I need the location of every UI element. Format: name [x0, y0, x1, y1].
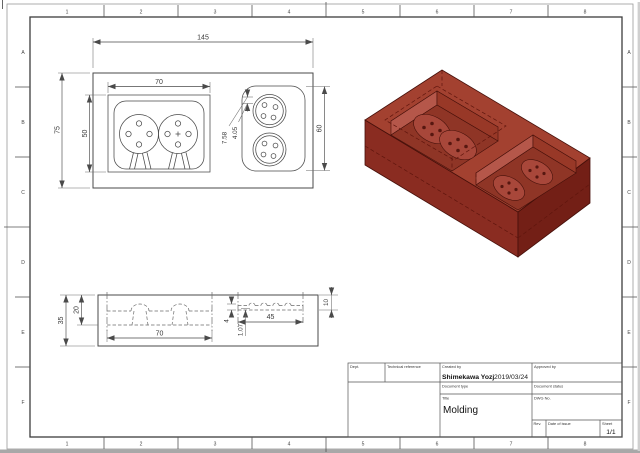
dim-text-145: 145	[197, 35, 209, 42]
zone-row: A	[21, 50, 25, 56]
dim-text-7.58: 7.58	[222, 131, 229, 144]
dept-label: Dept.	[350, 364, 359, 369]
zone-col: 4	[288, 442, 291, 448]
dim-text-10: 10	[323, 299, 330, 307]
cad-drawing-canvas: 1 2 3 4 5 6 7 8 1 2 3 4 5 6 7 8 A B C D …	[0, 0, 640, 453]
dim-text-50: 50	[82, 130, 89, 138]
drawing-title: Molding	[443, 405, 478, 416]
iso-view	[365, 70, 590, 257]
zone-row: C	[21, 190, 25, 196]
dim-boss-width: 70	[108, 79, 210, 93]
dim-cavity-width: 70	[107, 330, 212, 342]
top-view: 145 75 70 50 60	[55, 35, 331, 189]
title-label: Title	[442, 396, 449, 401]
zone-row: B	[21, 120, 25, 126]
zone-row: E	[627, 330, 631, 336]
zone-col: 7	[510, 442, 513, 448]
document-type-label: Document type	[442, 384, 468, 389]
boss-legs	[130, 153, 191, 170]
dwg-no-label: DWG No.	[534, 396, 551, 401]
dim-text-70: 70	[155, 79, 163, 86]
dim-text-20: 20	[74, 306, 81, 314]
left-cavity	[114, 101, 204, 169]
zone-col: 3	[214, 10, 217, 16]
technical-reference-label: Technical reference	[387, 364, 421, 369]
dim-text-4: 4	[224, 319, 231, 323]
zone-col: 2	[140, 442, 143, 448]
title-block: Dept. Technical reference Created by Shi…	[348, 363, 622, 437]
dim-text-35: 35	[58, 317, 65, 325]
dim-text-1.07: 1.07	[238, 323, 245, 336]
dim-text-4.05: 4.05	[232, 126, 239, 139]
dim-text-60: 60	[317, 125, 324, 133]
approved-by-label: Approved by	[534, 364, 556, 369]
center-mark-icon	[176, 132, 181, 137]
dim-right-cavity-height: 60	[306, 87, 330, 171]
created-date-value: 2019/03/24	[494, 374, 528, 381]
zone-col: 2	[140, 10, 143, 16]
dim-side-height: 35	[58, 295, 95, 346]
left-boss-rect	[108, 95, 210, 172]
zone-row: C	[627, 190, 631, 196]
dim-step: 4	[224, 297, 237, 323]
zone-row: F	[21, 400, 24, 406]
drawing-sheet: 1 2 3 4 5 6 7 8 1 2 3 4 5 6 7 8 A B C D …	[0, 0, 640, 453]
rev-label: Rev.	[534, 421, 542, 426]
zone-col: 1	[66, 10, 69, 16]
part-outline-side	[98, 295, 318, 346]
zone-row: D	[21, 260, 25, 266]
zone-row: A	[627, 50, 631, 56]
hidden-legs	[132, 311, 188, 325]
boss-bump	[171, 304, 189, 311]
zone-col: 5	[362, 10, 365, 16]
zone-col: 6	[436, 442, 439, 448]
socket-holes	[261, 103, 278, 159]
created-by-value: Shimekawa Yozj	[442, 374, 494, 381]
profile-bumps	[238, 303, 303, 306]
zone-row: D	[627, 260, 631, 266]
zone-row: F	[627, 400, 630, 406]
dim-socket-gaps: 7.58 4.05	[222, 89, 254, 144]
boss-circle	[120, 115, 159, 154]
date-of-issue-label: Date of issue	[548, 421, 571, 426]
zone-col: 3	[214, 442, 217, 448]
sheet-value: 1/1	[606, 429, 616, 436]
zone-col: 7	[510, 10, 513, 16]
created-by-label: Created by	[442, 364, 461, 369]
zone-col: 4	[288, 10, 291, 16]
sheet-label: Sheet	[602, 421, 613, 426]
dim-text-45: 45	[267, 314, 275, 321]
dim-overall-width: 145	[93, 35, 313, 69]
zone-col: 6	[436, 10, 439, 16]
zone-col: 8	[584, 10, 587, 16]
dim-boss-height: 50	[82, 95, 106, 172]
socket-circle	[253, 95, 286, 128]
zone-col: 1	[66, 442, 69, 448]
zone-row: E	[21, 330, 25, 336]
dim-text-70b: 70	[156, 331, 164, 338]
socket-circle	[253, 133, 286, 166]
page-bottom-shadow	[0, 450, 640, 453]
dim-right-cavity-depth: 10	[319, 287, 338, 318]
zone-col: 5	[362, 442, 365, 448]
socket-circle-inner	[256, 136, 284, 164]
boss-bump	[131, 304, 149, 311]
dim-right-cavity-width: 45	[238, 314, 303, 322]
zone-col: 8	[584, 442, 587, 448]
dim-text-75: 75	[55, 126, 62, 134]
zone-row: B	[627, 120, 631, 126]
side-view: 35 20 70 45 4 1.07	[58, 287, 338, 346]
dim-cavity-depth: 20	[74, 295, 99, 325]
socket-circle-inner	[256, 97, 284, 125]
document-status-label: Document status	[534, 384, 563, 389]
